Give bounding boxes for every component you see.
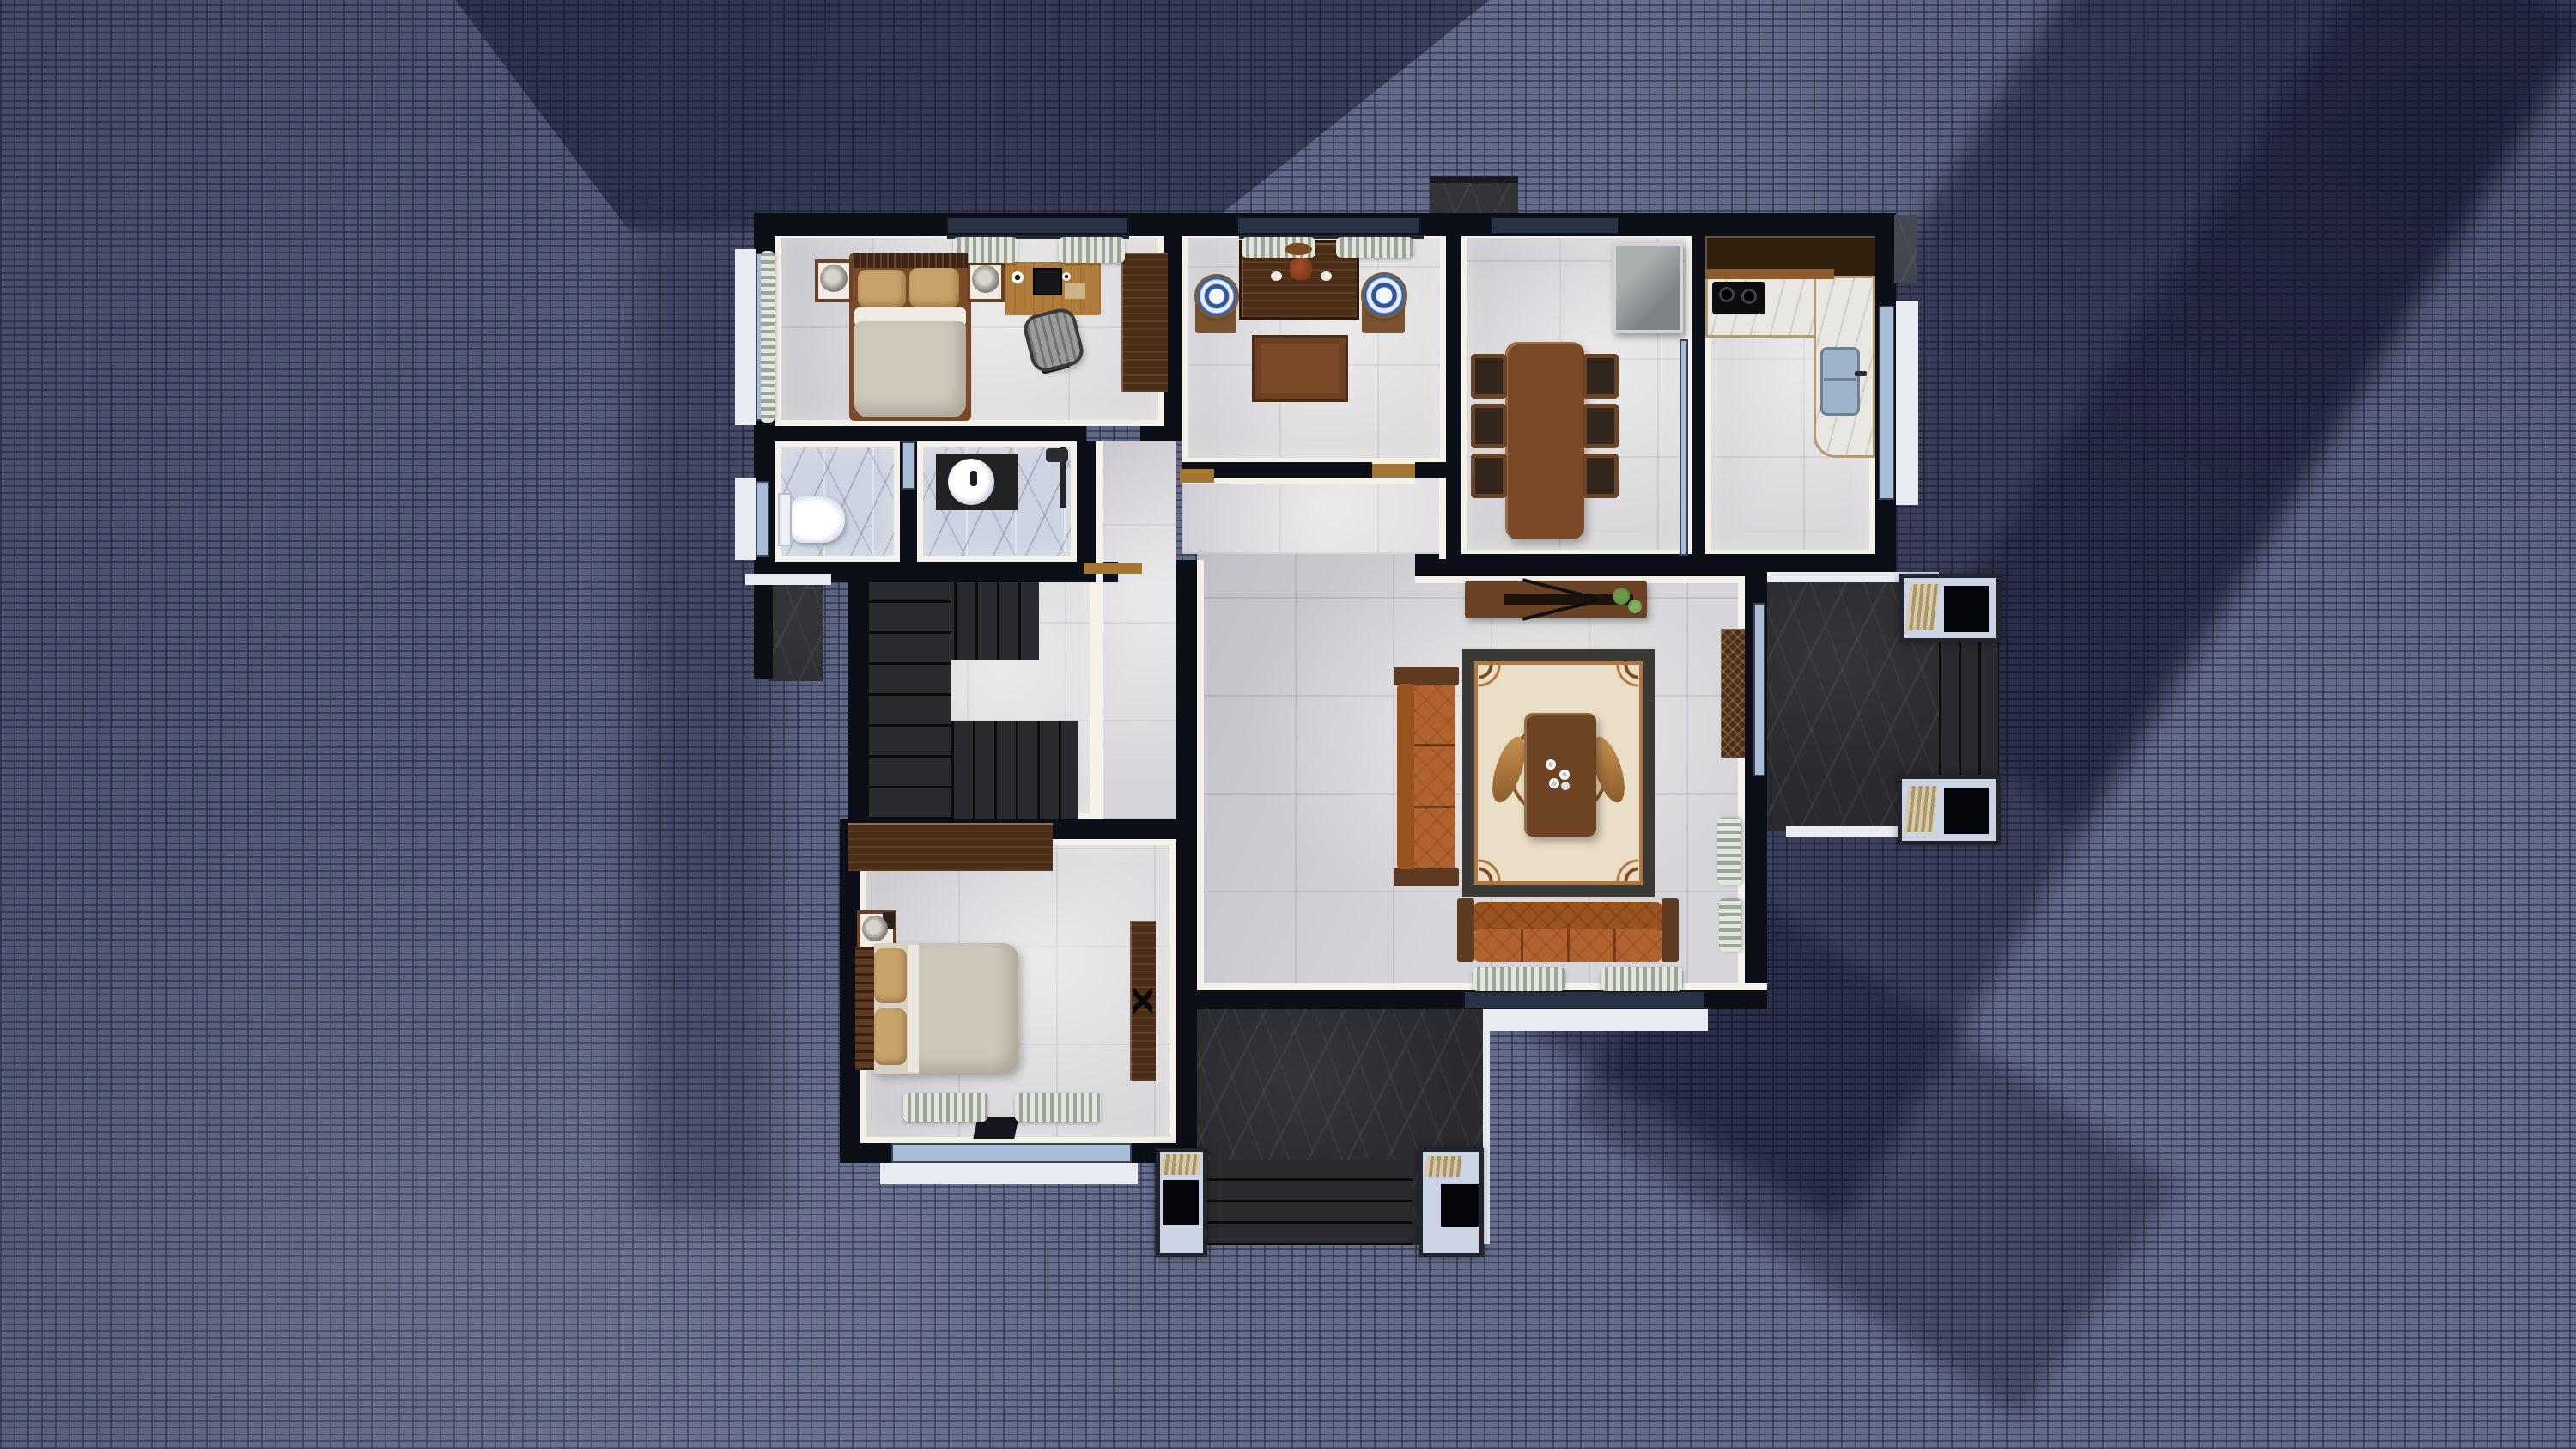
bed2-curtain-right	[1015, 1093, 1101, 1122]
stair-winder-column	[869, 562, 951, 819]
wall-bath-right	[1077, 441, 1096, 562]
cooktop-burner	[1741, 289, 1757, 304]
sofa-four-cushion-line	[1613, 929, 1616, 962]
dining-chair	[1583, 354, 1619, 399]
pedestal-planter	[1163, 1180, 1199, 1225]
bed2-pillow-top	[874, 948, 907, 1003]
bed2-curtain-left	[903, 1093, 987, 1122]
shower-head	[1046, 448, 1068, 462]
wall-face	[1197, 560, 1204, 990]
dining-sliding-door	[1680, 339, 1688, 556]
sofa-four-cushion-line	[1567, 929, 1570, 962]
porch-pedestal-left	[1156, 1148, 1207, 1257]
tea-set-cup	[1559, 770, 1570, 780]
bed2-headboard	[855, 947, 874, 1070]
cooktop-burner	[1719, 287, 1735, 302]
porch-pedestal-right	[1419, 1148, 1484, 1257]
bed2-pillow-bottom	[874, 1008, 907, 1065]
kitchen-right-window	[1879, 306, 1894, 500]
toilet-bowl	[792, 496, 845, 543]
pedestal-mat	[1161, 1154, 1201, 1175]
dining-chair	[1471, 354, 1507, 399]
bed1-top-window	[946, 216, 1129, 234]
bed2-bottom-window	[891, 1143, 1132, 1163]
bed1-wardrobe	[1121, 253, 1168, 392]
living-right-curtain-upper	[1717, 818, 1741, 885]
kitchen-sink-divider	[1824, 378, 1856, 381]
altar-bowl	[1285, 243, 1312, 255]
bed2-console-x	[1133, 971, 1152, 1031]
dining-chair	[1583, 454, 1619, 498]
bed1-blanket	[854, 321, 966, 417]
refrigerator	[1613, 242, 1683, 333]
bed1-left-window-sill	[735, 249, 756, 425]
sofa-long-cushion-line	[1414, 744, 1455, 746]
dining-chair	[1471, 454, 1507, 498]
sofa-long-back	[1397, 684, 1414, 869]
kitchen-sink	[1820, 347, 1860, 416]
hall-door-threshold	[1180, 469, 1214, 483]
dining-table	[1505, 342, 1584, 539]
desk-cup	[1062, 272, 1071, 281]
office-door-threshold	[1372, 464, 1415, 478]
kitchen-faucet	[1855, 371, 1867, 376]
living-bottom-curtain-right	[1601, 967, 1683, 991]
pedestal-planter	[1944, 586, 1989, 632]
kitchen-cabinet-lightwood	[1705, 269, 1834, 279]
bed1-pillow-left	[858, 270, 906, 307]
bed1-left-curtain	[761, 251, 775, 423]
porcelain-stool-left	[1197, 277, 1236, 316]
dining-chair	[1583, 404, 1619, 448]
kitchen-window-sill	[1896, 301, 1918, 505]
wall-office-dining	[1446, 213, 1461, 569]
living-bottom-curtain-left	[1473, 967, 1565, 991]
sofa-long-cushion-line	[1414, 806, 1455, 808]
room-corridor	[1096, 441, 1176, 819]
wall-face	[1439, 478, 1446, 559]
porcelain-stool-right	[1364, 275, 1405, 316]
tea-set-cup	[1546, 759, 1556, 770]
bed2-wardrobe	[848, 823, 1053, 871]
tea-table	[1252, 335, 1348, 402]
display-cabinet	[1721, 629, 1745, 758]
room-hall	[1182, 478, 1446, 554]
altar-flower-left	[1271, 271, 1282, 281]
console-plant	[1613, 588, 1630, 605]
tea-set-cup	[1549, 778, 1559, 788]
floor-plan-render	[0, 0, 2576, 1449]
bed2-bottom-sill	[880, 1163, 1138, 1184]
side-deck-steps	[1939, 636, 1999, 788]
living-right-curtain-lower	[1719, 898, 1741, 952]
bed2-lamp	[862, 916, 888, 941]
wall-face	[1096, 441, 1103, 819]
wall-living-bottom-r	[1705, 990, 1767, 1009]
toilet-tank	[778, 493, 792, 546]
side-stoop	[767, 585, 823, 681]
deck-pedestal-bottom	[1898, 775, 2001, 845]
stair-threshold	[1084, 563, 1142, 574]
wall-living-bottom-l	[1197, 990, 1463, 1009]
pedestal-mat	[1904, 786, 1938, 832]
wall-bed2-bottom-l	[840, 1143, 891, 1163]
side-stoop-sill	[745, 574, 831, 585]
bed1-headboard	[853, 253, 968, 268]
pedestal-planter	[1944, 788, 1989, 834]
pedestal-planter	[1441, 1184, 1479, 1227]
wall-face	[1182, 478, 1415, 484]
wall-dining-kitchen	[1692, 236, 1705, 576]
rug-corner-ornament	[1602, 845, 1638, 881]
roof-corner-slab	[1894, 215, 1917, 283]
console-plant	[1628, 600, 1642, 613]
vanity-faucet	[970, 471, 977, 486]
altar-pot	[1290, 258, 1312, 280]
wall-stair-left	[848, 562, 869, 837]
desk-monitor	[1033, 268, 1062, 295]
wall-office-bottom-r	[1415, 462, 1446, 478]
bed2-blanket	[919, 943, 1018, 1074]
stair-lower-flight	[951, 721, 1078, 819]
bed1-top-curtain-right	[1059, 237, 1125, 263]
altar-flower-right	[1321, 271, 1332, 281]
sofa-long-arm-bottom	[1394, 868, 1459, 886]
tea-curtain-right	[1336, 237, 1413, 258]
sofa-four-back	[1474, 902, 1662, 931]
bed1-lamp-right	[972, 265, 999, 293]
toilet-window-sill	[735, 478, 756, 560]
rug-corner-ornament	[1479, 665, 1515, 701]
front-porch-edge	[1483, 1008, 1490, 1244]
toilet-window	[756, 481, 769, 557]
bath-partition-window	[902, 441, 915, 490]
dining-top-window	[1491, 216, 1619, 234]
living-bottom-window	[1463, 990, 1705, 1009]
deck-pedestal-top	[1899, 574, 2001, 642]
living-right-window	[1753, 603, 1765, 776]
bed1-lamp-left	[820, 265, 848, 292]
bed1-pillow-right	[909, 268, 959, 307]
desk-speaker	[1012, 271, 1024, 283]
sofa-long-arm-top	[1394, 667, 1459, 685]
rug-corner-ornament	[1602, 665, 1638, 701]
sofa-four-arm-left	[1457, 898, 1474, 962]
tea-set-pot	[1561, 782, 1570, 790]
dining-chair	[1471, 404, 1507, 448]
front-porch-steps	[1202, 1160, 1413, 1245]
wall-bed1-bottom-l	[775, 426, 1086, 441]
wall-corridor-right	[1176, 560, 1197, 1163]
sofa-four-arm-right	[1662, 898, 1679, 962]
rug-corner-ornament	[1479, 845, 1515, 881]
pedestal-mat	[1905, 584, 1940, 630]
living-bottom-sill	[1483, 1009, 1708, 1031]
sofa-four-cushion-line	[1521, 929, 1523, 962]
desk-notepad	[1065, 283, 1085, 299]
office-top-window	[1236, 216, 1421, 234]
pedestal-mat	[1425, 1156, 1462, 1177]
